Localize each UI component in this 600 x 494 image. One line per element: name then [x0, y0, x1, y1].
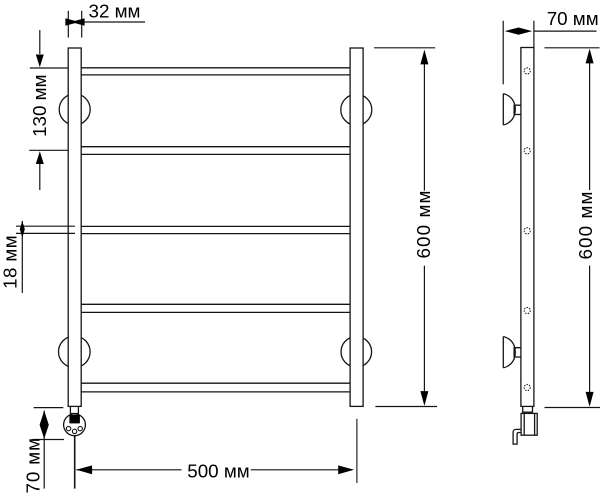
svg-text:500 мм: 500 мм — [187, 460, 249, 481]
svg-text:70 мм: 70 мм — [23, 437, 44, 493]
svg-text:600 мм: 600 мм — [575, 191, 596, 260]
svg-text:18 мм: 18 мм — [0, 235, 21, 289]
svg-text:600 мм: 600 мм — [413, 190, 434, 259]
svg-text:130 мм: 130 мм — [29, 75, 50, 137]
svg-text:70 мм: 70 мм — [547, 8, 599, 29]
svg-text:32 мм: 32 мм — [89, 1, 141, 22]
